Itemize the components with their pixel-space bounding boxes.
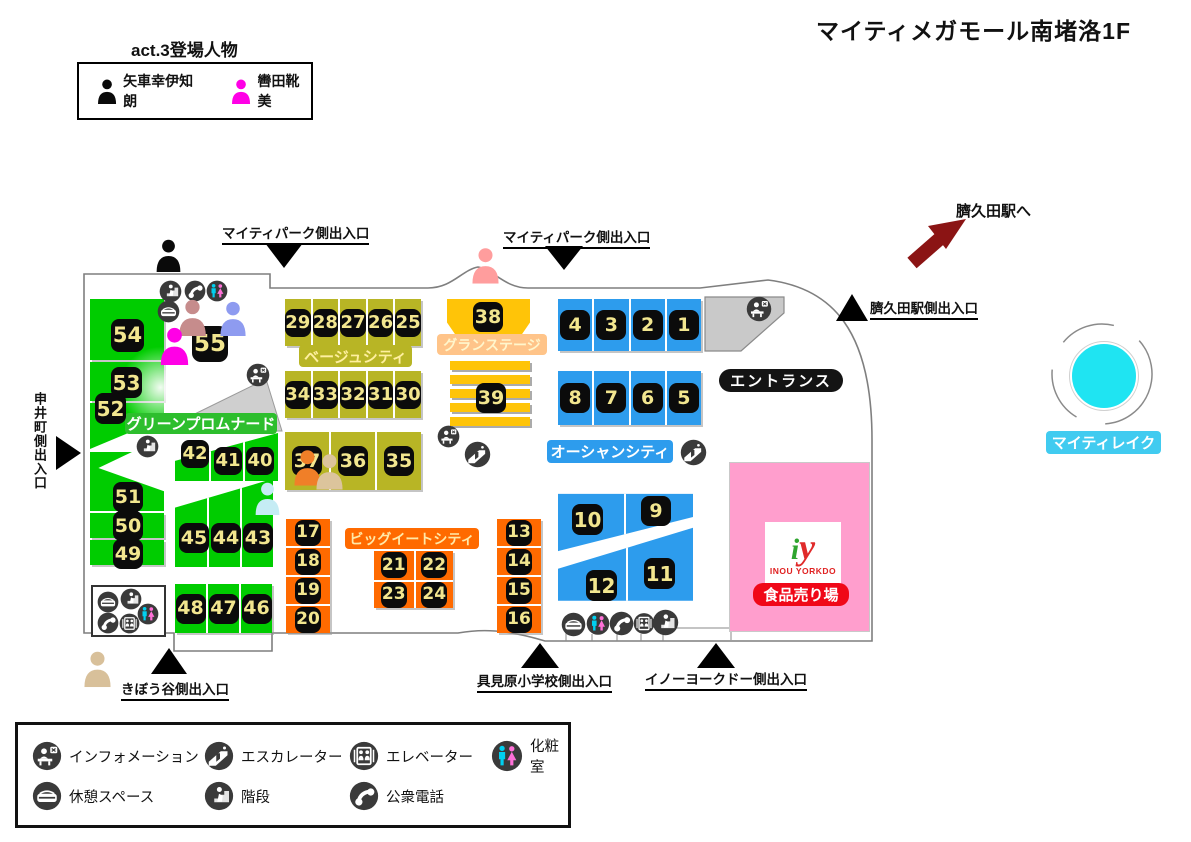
rest-space-icon xyxy=(32,781,62,811)
store-number: 15 xyxy=(506,578,532,604)
store-cell: 6 xyxy=(629,371,665,425)
stairs-icon xyxy=(204,781,234,811)
store-block-row-29-25: 29 28 27 26 25 xyxy=(285,299,421,346)
store-number: 9 xyxy=(641,496,671,526)
inou-yorkdo-block: iy INOU YORKDO 食品売り場 xyxy=(729,462,870,632)
legend-item: 休憩スペース xyxy=(32,781,204,811)
store-block-row-8-5: 8 7 6 5 xyxy=(558,371,701,425)
store-number: 19 xyxy=(295,578,321,604)
store-number: 43 xyxy=(243,523,273,553)
store-number: 32 xyxy=(340,381,366,409)
legend-item: インフォメーション xyxy=(32,741,204,771)
store-number: 1 xyxy=(669,310,699,340)
store-number: 44 xyxy=(211,523,241,553)
person-marker-salmon xyxy=(471,247,500,284)
escalator-icon xyxy=(204,741,234,771)
store-cell: 21 xyxy=(374,551,414,580)
information-icon xyxy=(437,425,460,448)
person-icon xyxy=(231,78,251,105)
store-cell: 15 xyxy=(497,575,541,604)
inou-yorkdo-name: INOU YORKDO xyxy=(770,566,836,576)
store-block-center-21-24: 21 22 23 24 xyxy=(374,551,453,608)
person-marker-magenta xyxy=(159,327,190,365)
store-number: 33 xyxy=(313,381,339,409)
store-cell: 7 xyxy=(592,371,628,425)
store-block-row-4-1: 4 3 2 1 xyxy=(558,299,701,351)
store-number: 40 xyxy=(246,447,274,475)
store-cell: 24 xyxy=(414,580,454,609)
store-number: 35 xyxy=(384,446,414,476)
store-number: 34 xyxy=(285,381,311,409)
store-cell: 22 xyxy=(414,551,454,580)
store-number: 13 xyxy=(506,520,532,546)
store-cell: 8 xyxy=(558,371,592,425)
store-cell: 19 xyxy=(286,575,330,604)
store-number: 14 xyxy=(506,549,532,575)
store-cell: 18 xyxy=(286,546,330,575)
store-number: 31 xyxy=(368,381,394,409)
legend-label: インフォメーション xyxy=(69,746,199,767)
stage-step xyxy=(450,417,530,426)
store-number: 39 xyxy=(476,383,506,413)
exit-triangle-station-side xyxy=(836,294,868,321)
exit-label-monoi-town: 申井町側出入口 xyxy=(30,392,49,490)
legend-label: 休憩スペース xyxy=(69,786,154,807)
facility-icon-box xyxy=(91,585,166,637)
store-number: 25 xyxy=(395,309,421,337)
store-block-row-48-46: 48 47 46 xyxy=(175,584,272,633)
zone-label-beige-city: ベージュシティ xyxy=(299,345,412,367)
store-number: 23 xyxy=(381,582,407,608)
store-number: 46 xyxy=(242,594,272,624)
lake-label: マイティレイク xyxy=(1046,431,1161,454)
store-cell: 23 xyxy=(374,580,414,609)
legend-label: 階段 xyxy=(241,786,270,807)
character-name: 矢車幸伊知朗 xyxy=(123,71,203,111)
store-number: 6 xyxy=(633,383,663,413)
person-icon xyxy=(97,78,117,105)
store-cell: 28 xyxy=(311,299,339,346)
store-cell: 48 xyxy=(175,584,206,633)
store-block-col-13-16: 13 14 15 16 xyxy=(497,519,541,633)
zone-label-green-promenade: グリーンプロムナード xyxy=(125,413,277,434)
store-cell: 25 xyxy=(393,299,421,346)
information-icon xyxy=(32,741,62,771)
exit-label-gumihara-school: 具見原小学校側出入口 xyxy=(477,670,612,693)
store-number: 5 xyxy=(669,383,699,413)
legend-label: 公衆電話 xyxy=(386,786,444,807)
store-number: 52 xyxy=(95,393,126,424)
store-number: 10 xyxy=(572,504,603,535)
person-marker-black xyxy=(155,239,182,272)
iy-logo: iy xyxy=(791,531,815,563)
entrance-label: エントランス xyxy=(719,369,843,392)
map-legend: インフォメーション エスカレーター エレベーター 化粧室 休憩スペース 階段 公… xyxy=(15,722,571,828)
logo-i: i xyxy=(791,533,799,566)
store-cell: 26 xyxy=(366,299,394,346)
store-cell: 33 xyxy=(311,371,339,418)
person-marker-cyan xyxy=(254,482,281,515)
store-number: 29 xyxy=(285,309,311,337)
escalator-icon xyxy=(680,439,707,466)
store-number: 28 xyxy=(313,309,339,337)
store-cell: 34 xyxy=(285,371,311,418)
logo-y: y xyxy=(799,527,815,567)
store-number: 8 xyxy=(560,383,590,413)
store-number: 20 xyxy=(295,607,321,633)
legend-label: エスカレーター xyxy=(241,746,343,767)
exit-triangle-gumihara-school xyxy=(521,643,559,668)
store-cell: 4 xyxy=(558,299,592,351)
legend-label: エレベーター xyxy=(386,746,473,767)
rest-space-icon xyxy=(97,591,119,613)
rest-space-icon xyxy=(561,612,586,637)
store-number: 24 xyxy=(421,582,447,608)
exit-label-station-side: 臍久田駅側出入口 xyxy=(870,297,978,320)
exit-triangle-monoi-town xyxy=(56,436,81,470)
legend-item: エスカレーター xyxy=(204,741,349,771)
stage-step xyxy=(450,361,530,370)
public-phone-icon xyxy=(609,611,634,636)
zone-label-grand-stage: グランステージ xyxy=(437,334,547,355)
elevator-icon xyxy=(349,741,379,771)
store-number: 41 xyxy=(214,447,242,475)
store-cell: 27 xyxy=(338,299,366,346)
cast-character: 矢車幸伊知朗 xyxy=(97,71,203,111)
food-department-badge: 食品売り場 xyxy=(753,583,849,606)
store-number: 17 xyxy=(295,520,321,546)
public-phone-icon xyxy=(349,781,379,811)
store-cell: 3 xyxy=(592,299,628,351)
person-marker-beige xyxy=(83,650,112,688)
store-number: 27 xyxy=(340,309,366,337)
store-cell: 1 xyxy=(665,299,701,351)
inou-yorkdo-logo: iy INOU YORKDO xyxy=(765,522,841,585)
store-cell: 16 xyxy=(497,604,541,633)
store-cell: 14 xyxy=(497,546,541,575)
restroom-icon xyxy=(491,740,523,772)
store-number: 26 xyxy=(368,309,394,337)
store-cell: 17 xyxy=(286,519,330,546)
store-number: 50 xyxy=(113,511,143,541)
store-cell: 47 xyxy=(206,584,239,633)
store-cell: 2 xyxy=(629,299,665,351)
store-number: 30 xyxy=(395,381,421,409)
store-number: 12 xyxy=(586,570,617,601)
store-cell: 35 xyxy=(375,432,421,490)
store-number: 38 xyxy=(473,302,503,332)
restroom-icon xyxy=(137,602,159,626)
store-number: 4 xyxy=(560,310,590,340)
store-number: 49 xyxy=(113,539,143,569)
exit-label-inou-side: イノーヨークドー側出入口 xyxy=(645,668,807,691)
station-direction-label: 臍久田駅へ xyxy=(956,200,1031,221)
store-number: 51 xyxy=(113,482,143,512)
store-cell: 5 xyxy=(665,371,701,425)
legend-item: 化粧室 xyxy=(491,735,568,777)
zone-label-big-eat-city: ビッグイートシティ xyxy=(345,528,479,549)
store-number: 18 xyxy=(295,549,321,575)
store-cell: 13 xyxy=(497,519,541,546)
restroom-icon xyxy=(206,280,228,302)
store-cell: 30 xyxy=(393,371,421,418)
store-cell: 32 xyxy=(338,371,366,418)
store-cell: 46 xyxy=(239,584,272,633)
exit-label-park-west: マイティパーク側出入口 xyxy=(222,222,369,245)
store-number: 47 xyxy=(209,594,239,624)
store-number: 7 xyxy=(596,383,626,413)
person-marker-periwinkle xyxy=(219,301,247,336)
legend-item: 公衆電話 xyxy=(349,781,491,811)
escalator-icon xyxy=(464,441,491,468)
character-name: 轡田靴美 xyxy=(257,71,311,111)
store-cell: 20 xyxy=(286,604,330,633)
information-icon xyxy=(246,363,270,387)
elevator-icon xyxy=(119,613,140,634)
public-phone-icon xyxy=(97,612,119,634)
exit-triangle-park-east xyxy=(545,246,583,270)
information-icon xyxy=(746,296,772,322)
legend-label: 化粧室 xyxy=(530,735,568,777)
person-marker-tan xyxy=(315,453,344,490)
exit-triangle-kibou-valley xyxy=(151,648,187,674)
store-number: 22 xyxy=(421,552,447,578)
legend-item: エレベーター xyxy=(349,741,491,771)
cast-character: 轡田靴美 xyxy=(231,71,311,111)
store-number: 11 xyxy=(644,558,675,589)
exit-label-kibou-valley: きぼう谷側出入口 xyxy=(121,678,229,701)
store-block-col-17-20: 17 18 19 20 xyxy=(286,519,330,633)
store-number: 2 xyxy=(633,310,663,340)
store-number: 54 xyxy=(111,319,144,352)
zone-label-ocean-city: オーシャンシティ xyxy=(547,440,673,463)
cast-panel: 矢車幸伊知朗 轡田靴美 xyxy=(77,62,313,120)
mighty-lake xyxy=(1070,342,1138,410)
store-number: 16 xyxy=(506,607,532,633)
stairs-icon xyxy=(136,435,159,458)
store-block-row-34-30: 34 33 32 31 30 xyxy=(285,371,421,418)
exit-triangle-park-west xyxy=(265,243,303,268)
store-number: 42 xyxy=(181,440,209,468)
mall-floor-map: マイティメガモール南堵洛1F act.3登場人物 矢車幸伊知朗 轡田靴美 臍久田… xyxy=(0,0,1191,842)
store-number: 21 xyxy=(381,552,407,578)
stairs-icon xyxy=(652,609,679,636)
store-cell: 29 xyxy=(285,299,311,346)
store-number: 48 xyxy=(176,594,206,624)
store-cell: 31 xyxy=(366,371,394,418)
legend-item: 階段 xyxy=(204,781,349,811)
restroom-icon xyxy=(586,610,610,637)
exit-triangle-inou-side xyxy=(697,643,735,668)
store-number: 45 xyxy=(179,523,209,553)
store-number: 3 xyxy=(596,310,626,340)
